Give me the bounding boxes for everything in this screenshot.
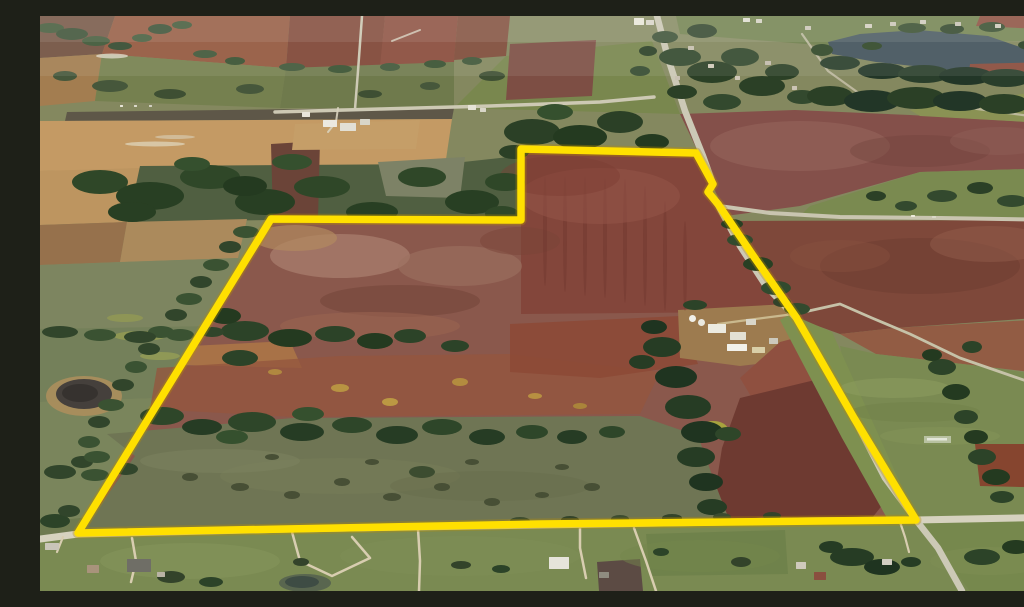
aerial-property-view xyxy=(40,16,1024,591)
haze-layer xyxy=(40,16,1024,76)
map-label-layer xyxy=(924,436,951,443)
aerial-imagery xyxy=(40,16,1024,591)
